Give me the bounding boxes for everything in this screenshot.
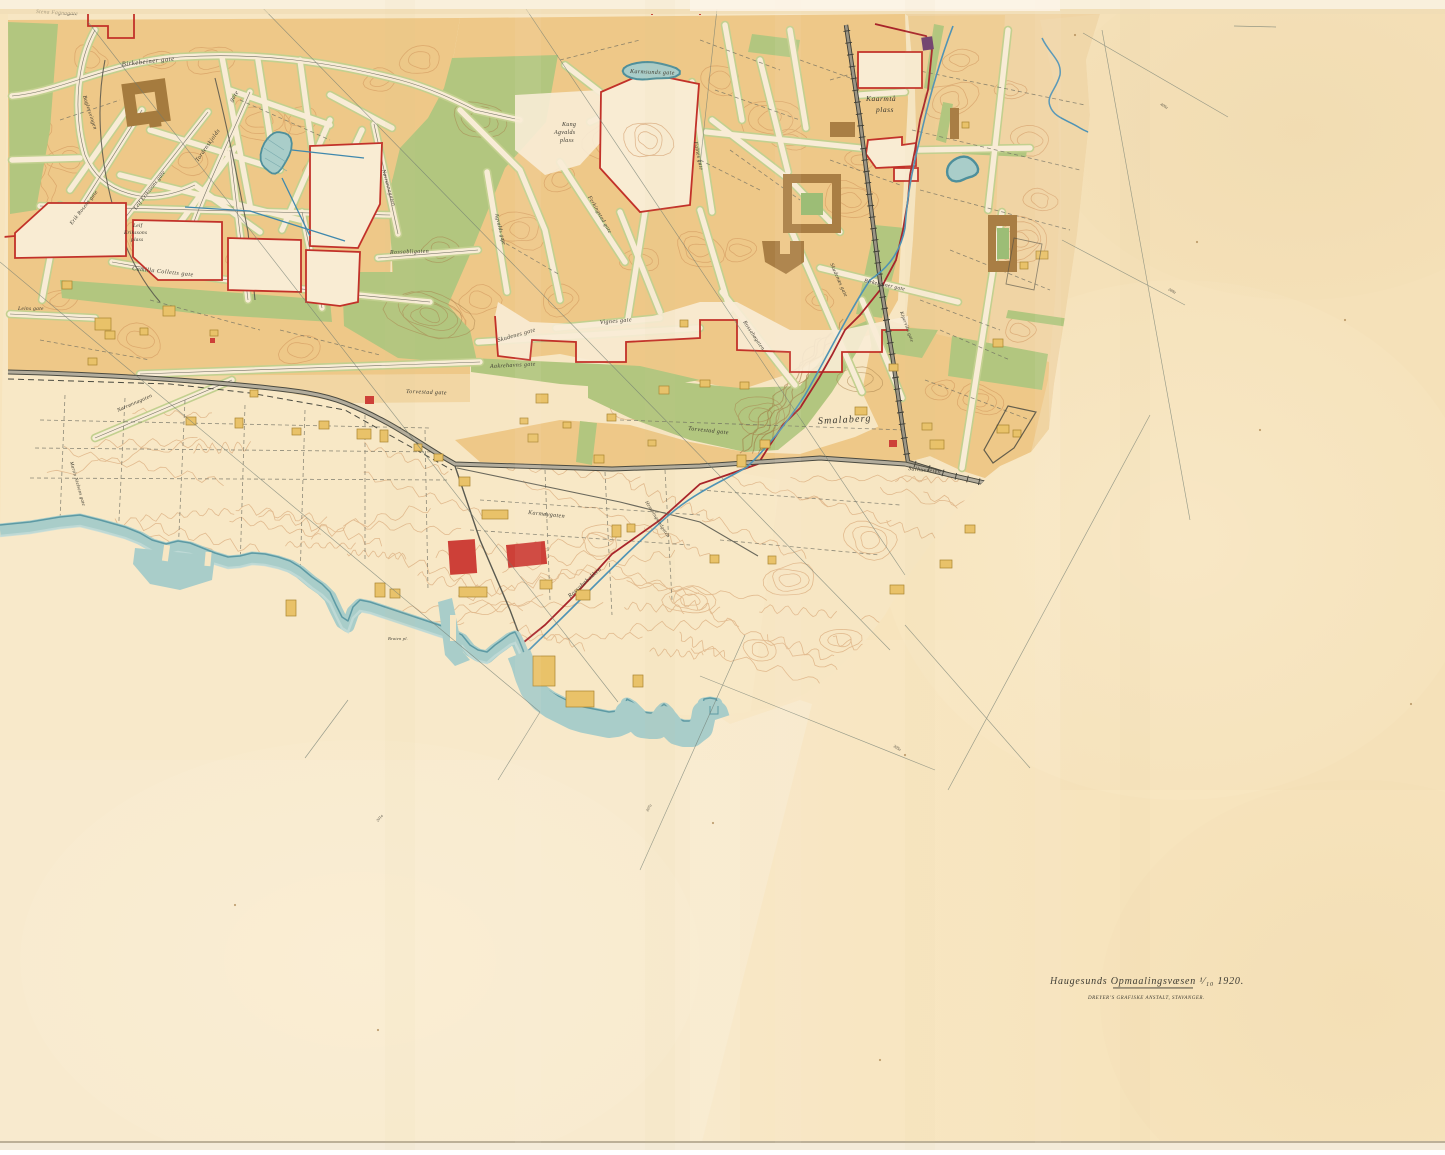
svg-text:Leins gate: Leins gate (17, 306, 44, 312)
svg-text:Agvalds: Agvalds (553, 130, 576, 136)
svg-text:plass: plass (130, 237, 143, 243)
svg-text:plass: plass (559, 138, 574, 144)
svg-text:Erikssons: Erikssons (123, 230, 147, 236)
svg-text:Leif: Leif (132, 222, 144, 229)
svg-text:Kaarmtå: Kaarmtå (865, 94, 896, 103)
svg-text:Kung: Kung (561, 122, 576, 128)
svg-text:plass: plass (875, 105, 894, 114)
